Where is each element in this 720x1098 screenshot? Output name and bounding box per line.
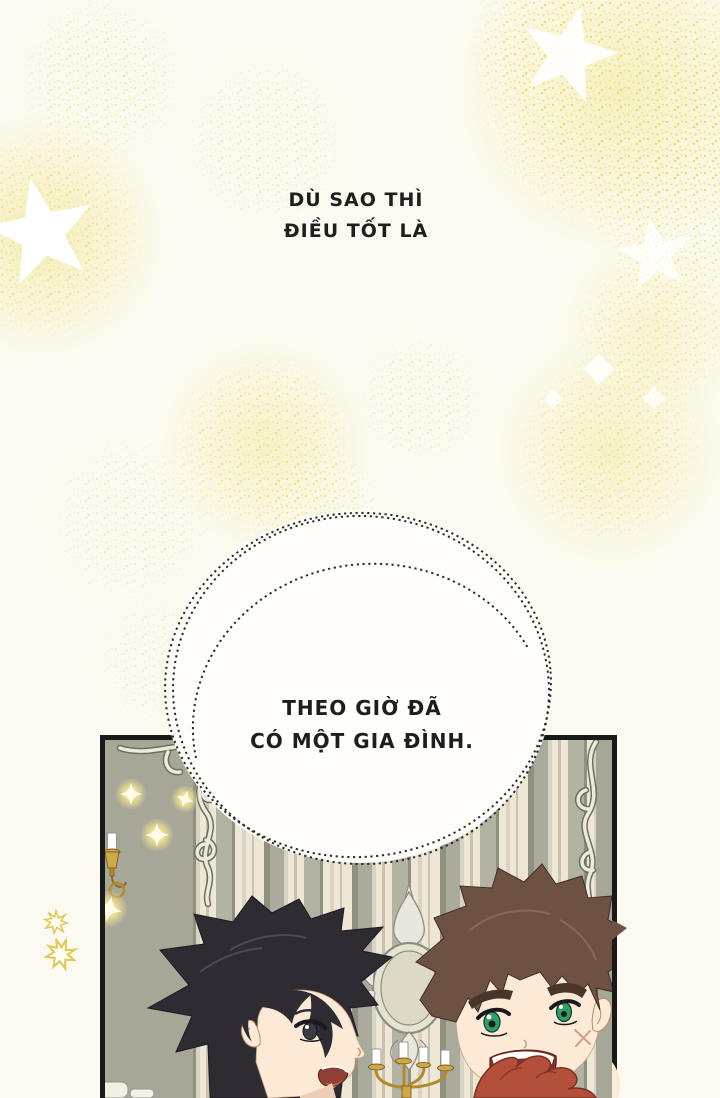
narration-top-line2: ĐIỀU TỐT LÀ (284, 216, 429, 247)
narration-top: DÙ SAO THÌ ĐIỀU TỐT LÀ (284, 185, 429, 247)
speech-bubble-text: THEO GIỜ ĐÃ CÓ MỘT GIA ĐÌNH. (250, 692, 474, 758)
speech-bubble-line1: THEO GIỜ ĐÃ (250, 692, 474, 725)
comic-artwork (0, 0, 720, 1098)
speech-bubble-line2: CÓ MỘT GIA ĐÌNH. (250, 725, 474, 758)
narration-top-line1: DÙ SAO THÌ (284, 185, 429, 216)
collar-shape (130, 1089, 154, 1098)
comic-page: DÙ SAO THÌ ĐIỀU TỐT LÀ THEO GIỜ ĐÃ CÓ MỘ… (0, 0, 720, 1098)
